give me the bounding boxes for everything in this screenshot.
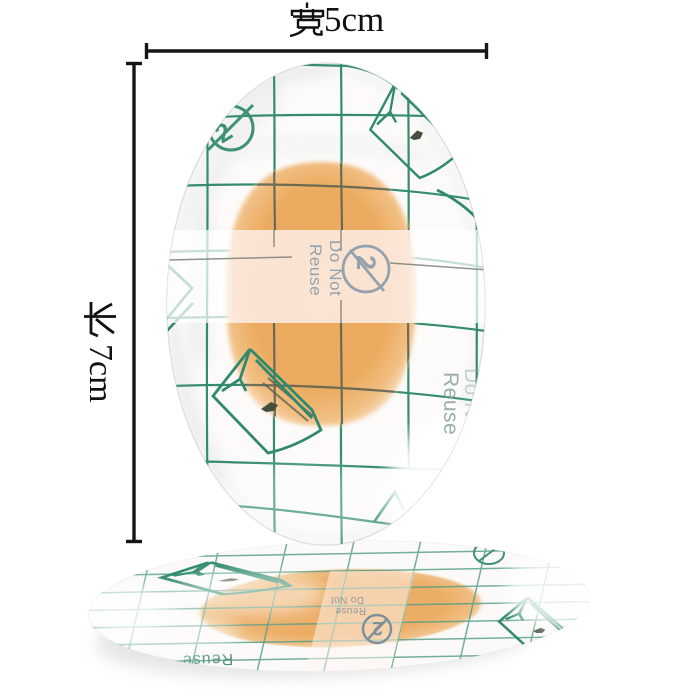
svg-text:Do Not: Do Not — [330, 594, 364, 605]
svg-text:Reuse: Reuse — [335, 605, 366, 616]
svg-text:Reuse: Reuse — [439, 372, 462, 435]
svg-text:2: 2 — [351, 255, 381, 270]
svg-text:Reuse: Reuse — [306, 244, 325, 296]
svg-text:2: 2 — [372, 617, 383, 638]
svg-text:7cm: 7cm — [82, 344, 119, 403]
svg-text:5cm: 5cm — [324, 0, 384, 39]
